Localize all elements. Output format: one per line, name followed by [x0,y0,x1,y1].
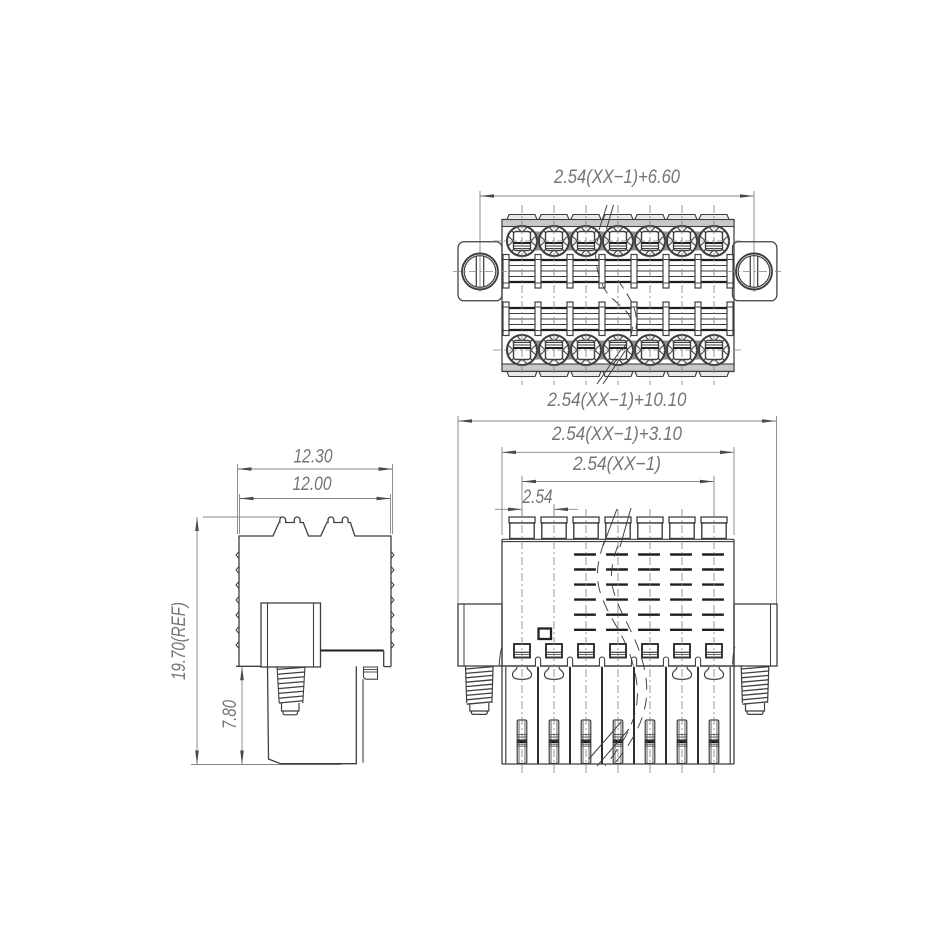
svg-text:12.30: 12.30 [294,445,333,467]
svg-text:12.00: 12.00 [293,473,332,495]
svg-text:2.54: 2.54 [522,486,553,508]
svg-text:2.54(XX−1): 2.54(XX−1) [572,453,661,475]
svg-text:2.54(XX−1)+3.10: 2.54(XX−1)+3.10 [551,423,682,445]
svg-text:7.80: 7.80 [219,700,241,729]
svg-text:2.54(XX−1)+6.60: 2.54(XX−1)+6.60 [553,166,680,188]
svg-text:19.70(REF): 19.70(REF) [168,602,190,680]
svg-text:2.54(XX−1)+10.10: 2.54(XX−1)+10.10 [547,389,687,411]
